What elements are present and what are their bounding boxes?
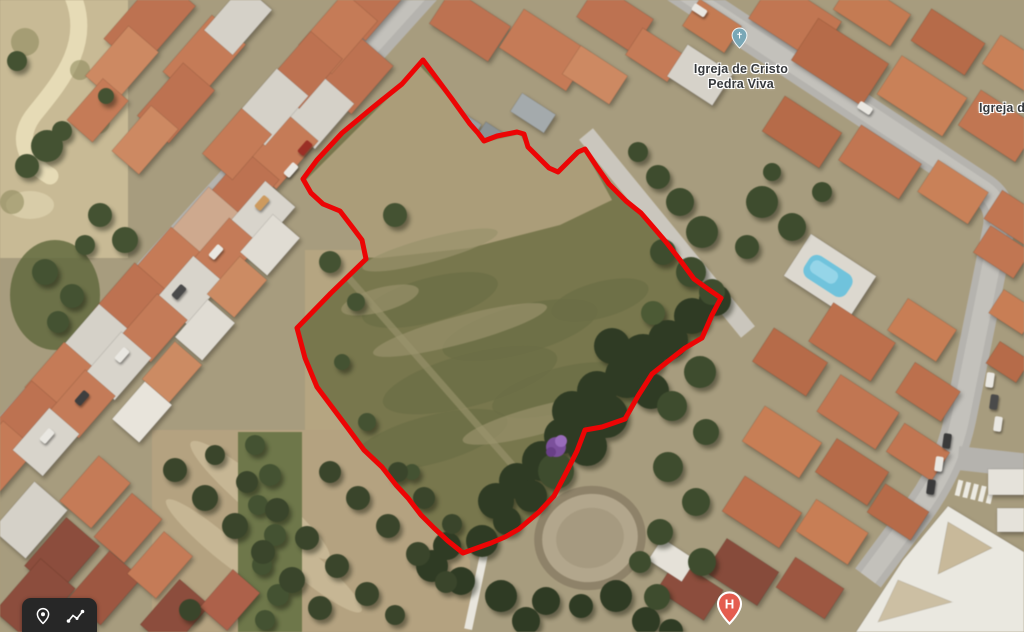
palm-tree: [641, 301, 665, 325]
map-tools-toolbar: [22, 598, 97, 632]
place-of-worship-marker[interactable]: ✝: [731, 27, 748, 49]
satellite-imagery: [0, 0, 1024, 632]
church-poi-label-partial: Igreja d: [979, 101, 1024, 116]
hospital-pin-icon: H: [716, 591, 743, 625]
hospital-marker[interactable]: H: [716, 591, 743, 625]
polyline-icon: [66, 608, 86, 624]
map-canvas[interactable]: ✝ Igreja de Cristo Pedra Viva Igreja d H: [0, 0, 1024, 632]
cross-icon: ✝: [736, 31, 744, 41]
church-pin-icon: ✝: [731, 27, 748, 49]
add-path-button[interactable]: [62, 602, 90, 630]
church-poi-label[interactable]: Igreja de Cristo Pedra Viva: [694, 62, 788, 92]
church-poi-label-line2: Pedra Viva: [694, 77, 788, 92]
church-poi-label-line1: Igreja de Cristo: [694, 62, 788, 77]
add-placemark-button[interactable]: [29, 602, 57, 630]
hospital-letter: H: [725, 596, 735, 611]
location-pin-icon: [34, 607, 52, 625]
